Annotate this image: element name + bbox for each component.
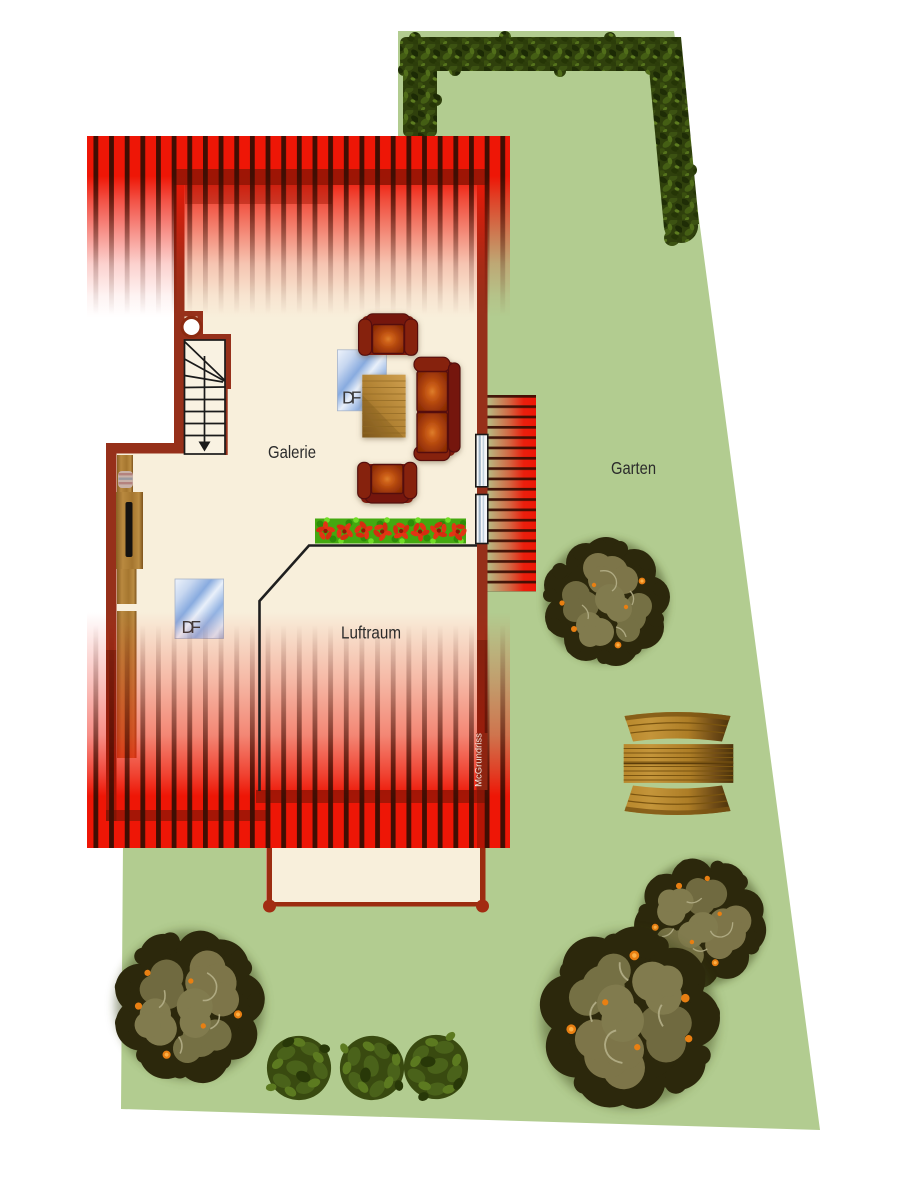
svg-text:Galerie: Galerie bbox=[268, 442, 316, 462]
svg-text:DF: DF bbox=[342, 388, 362, 408]
svg-text:Garten: Garten bbox=[611, 458, 656, 478]
svg-text:Luftraum: Luftraum bbox=[341, 623, 401, 643]
svg-text:McGrundriss: McGrundriss bbox=[474, 733, 485, 787]
